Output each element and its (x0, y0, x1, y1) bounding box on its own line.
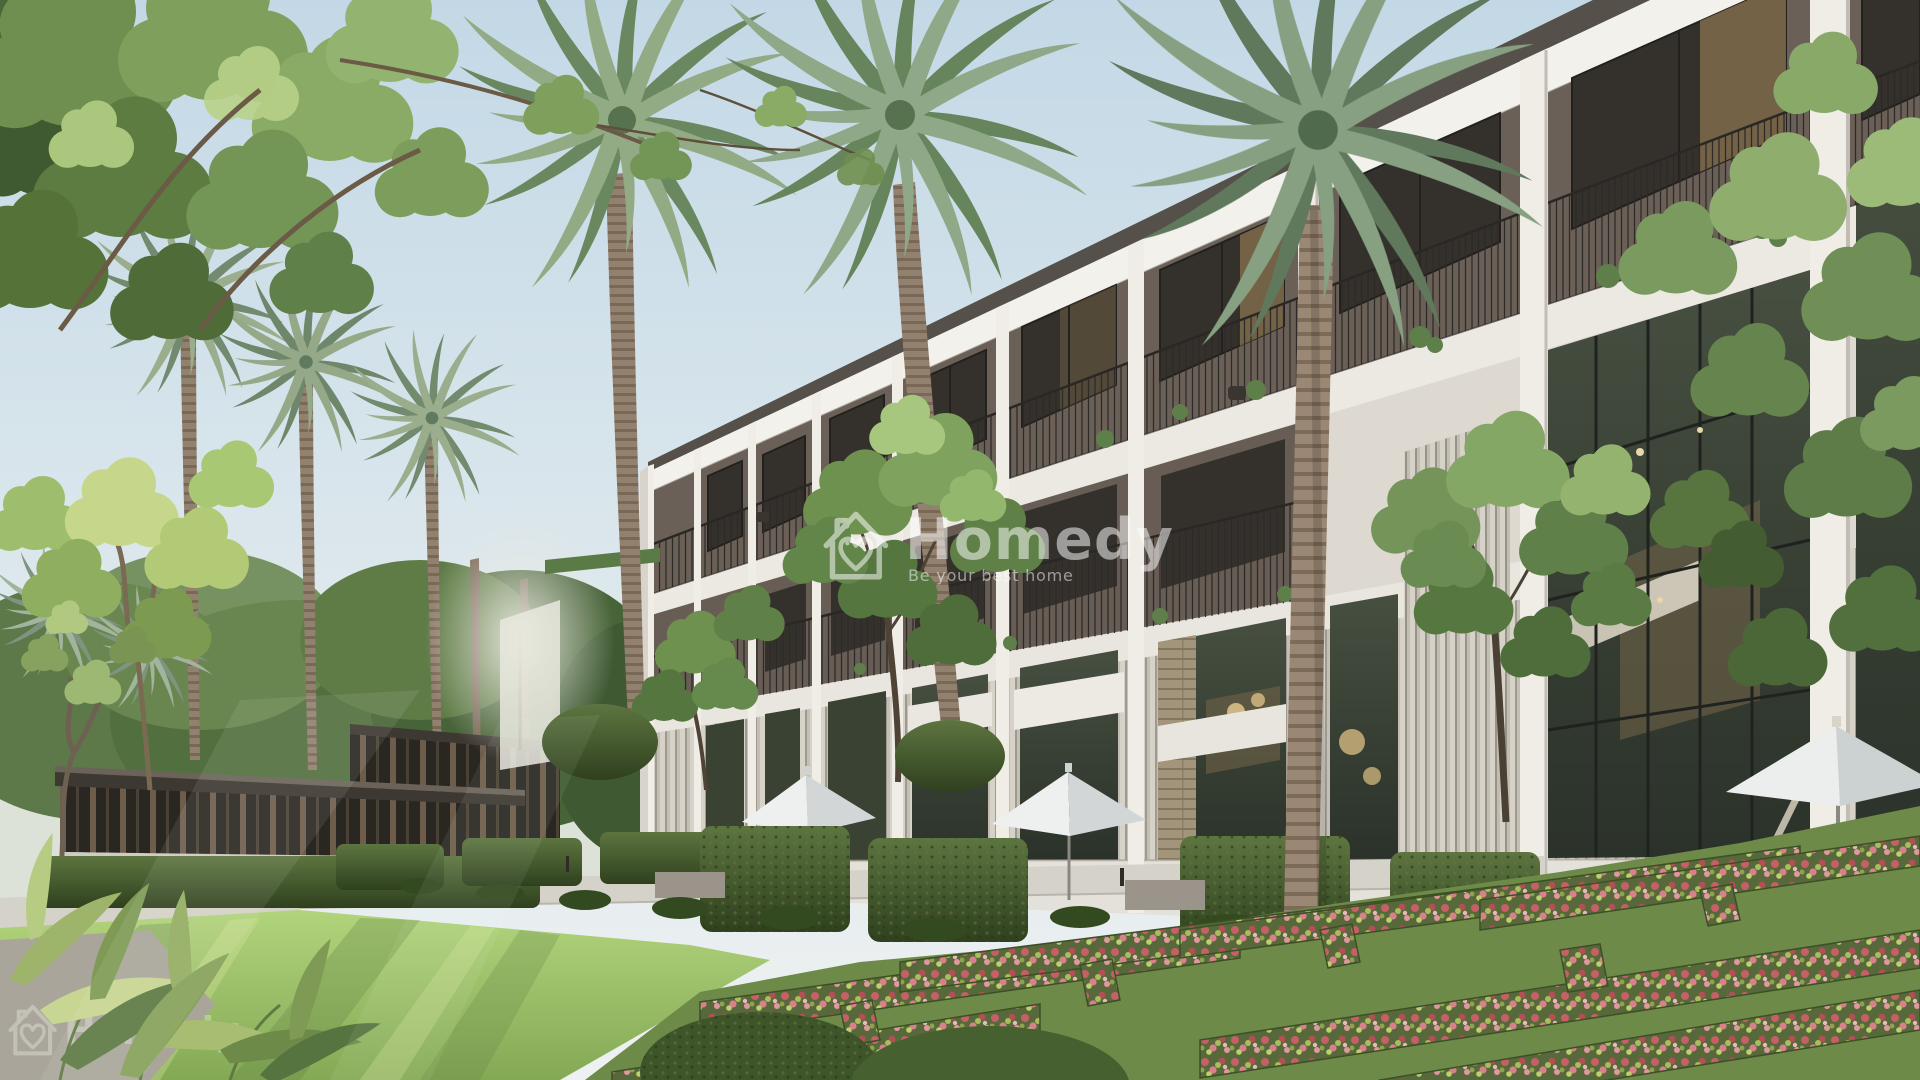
watermark-brand: Homedy (905, 507, 1174, 573)
scene-canvas: Homedy Homedy Be (0, 0, 1920, 1080)
planter (1125, 880, 1205, 910)
garden-light (1120, 868, 1124, 886)
watermark-tagline: Be your best home (908, 566, 1074, 585)
planter (655, 872, 725, 898)
photo-render: Homedy Homedy Be (0, 0, 1920, 1080)
garden-light (566, 856, 569, 872)
